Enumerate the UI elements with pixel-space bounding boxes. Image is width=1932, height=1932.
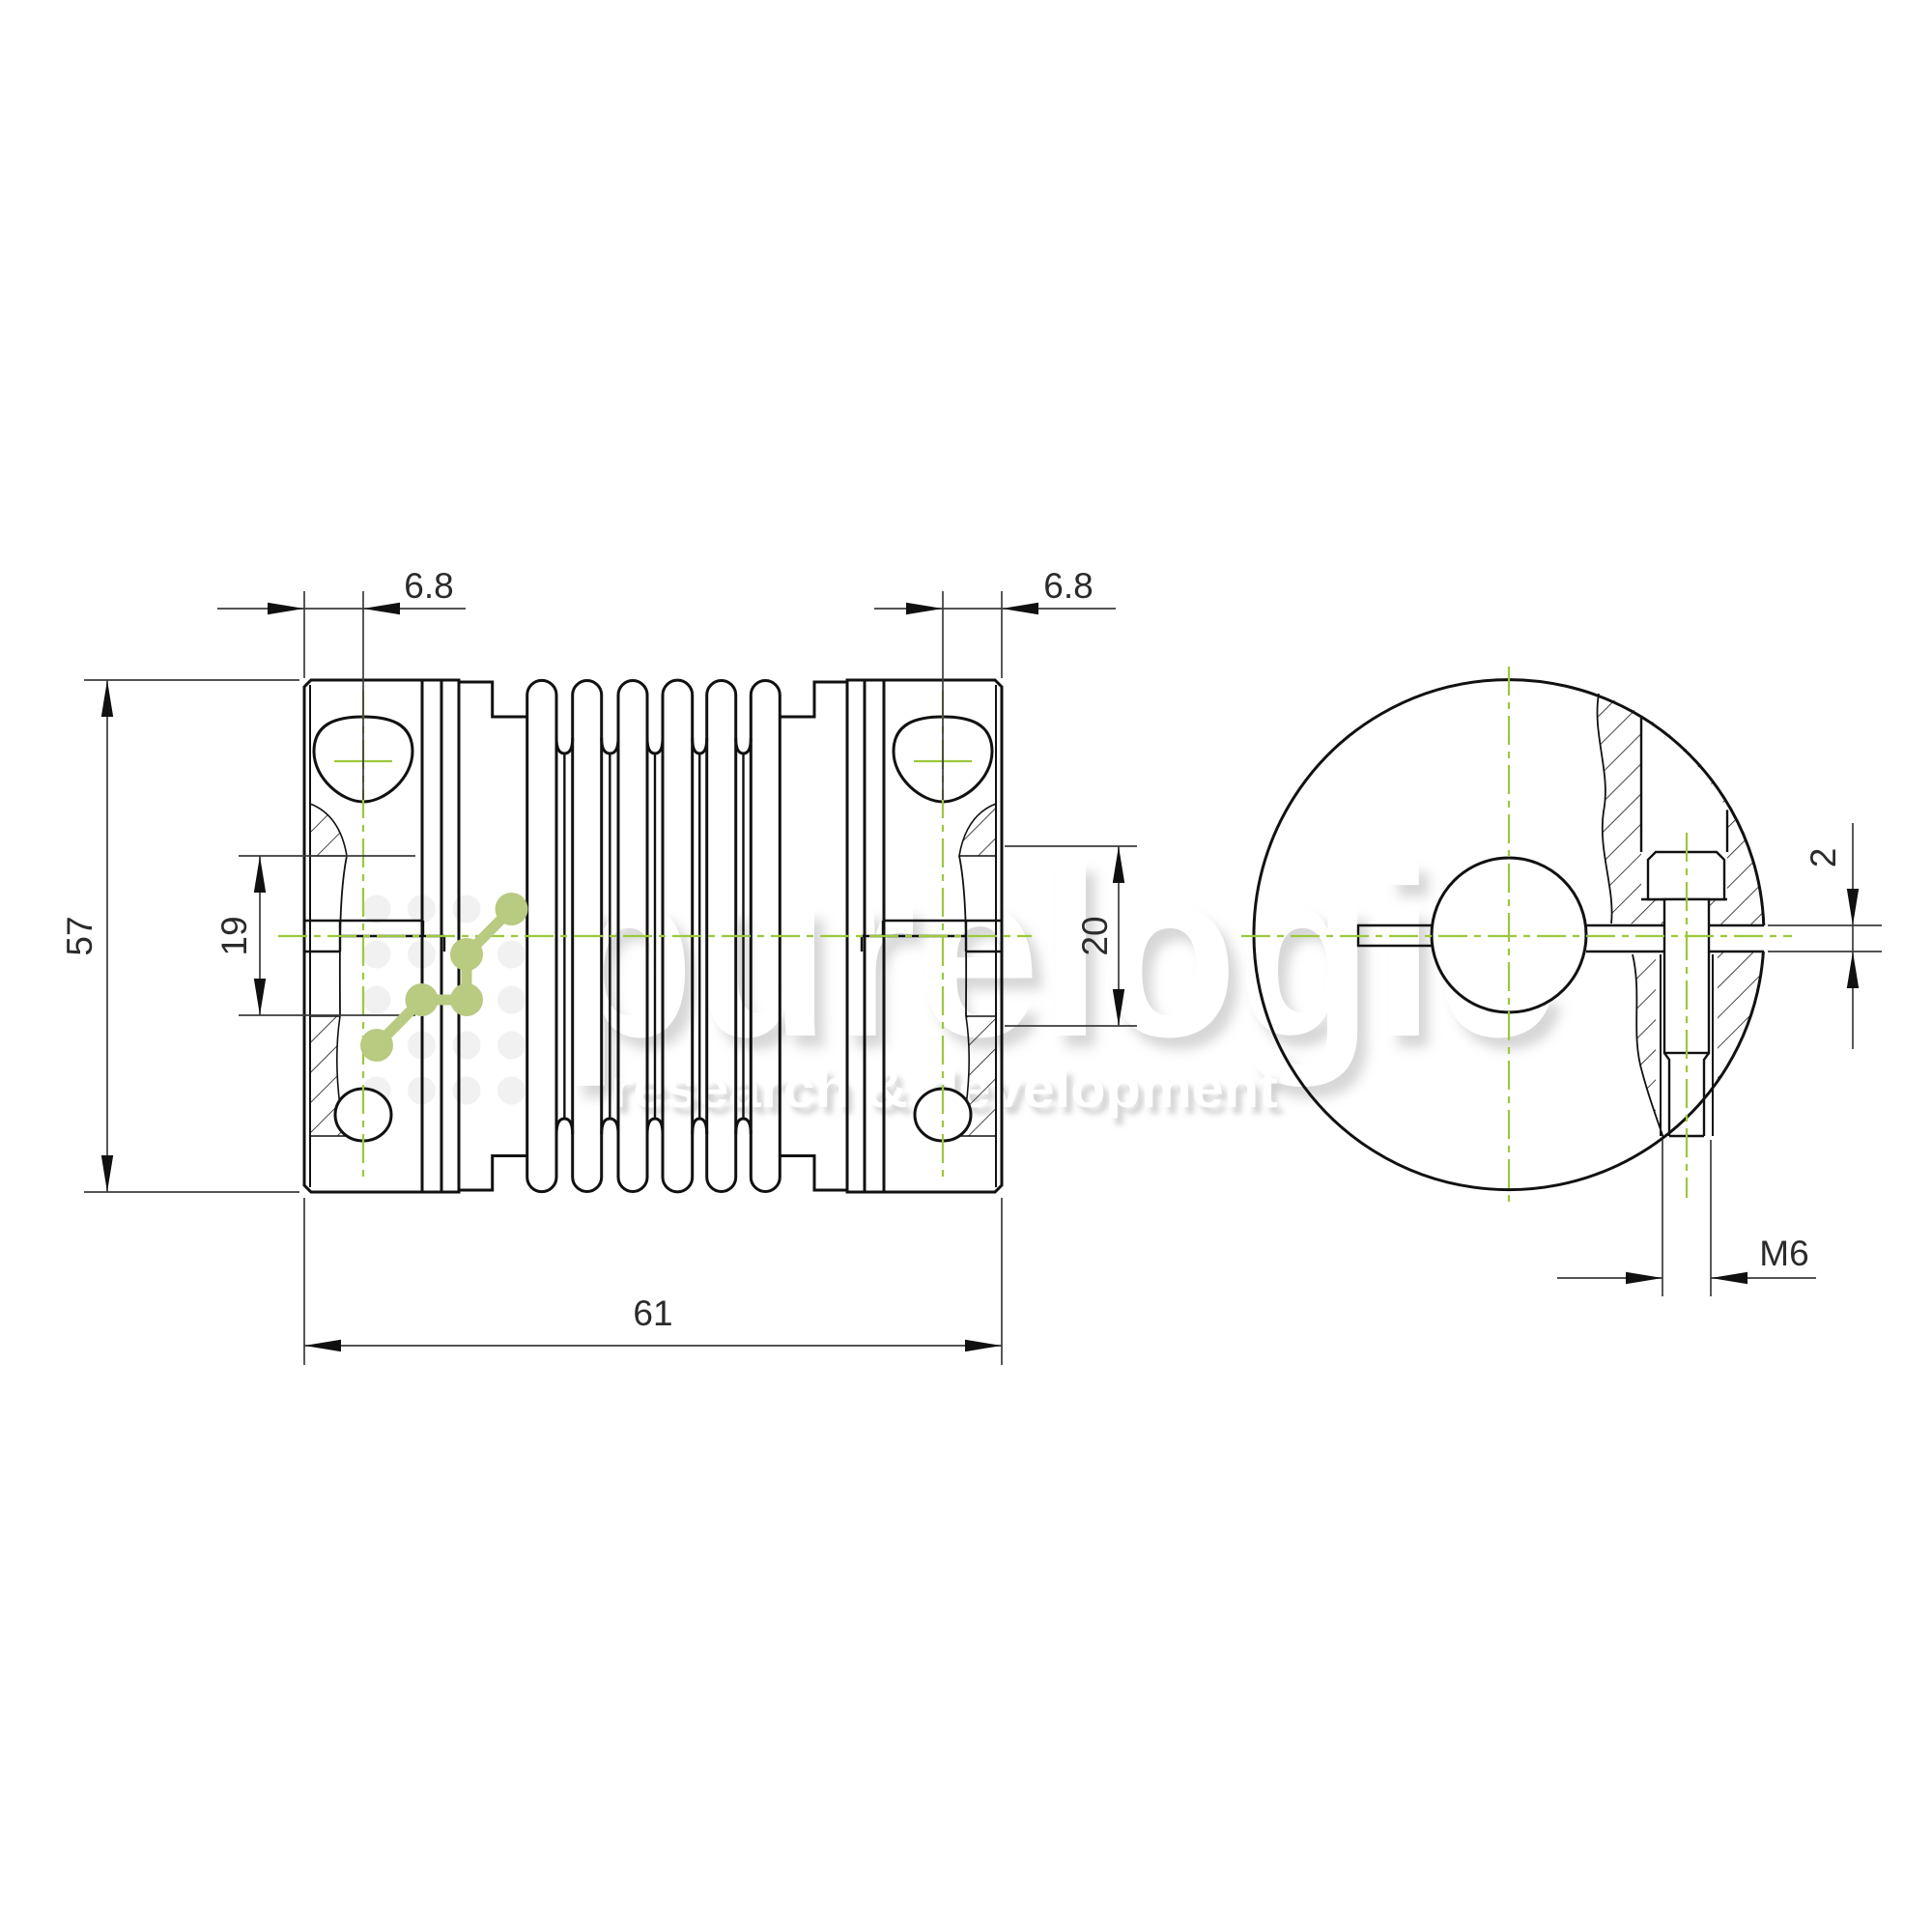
logo-node-icon <box>406 983 439 1016</box>
logo-node-icon <box>496 893 528 925</box>
logo-node-icon <box>450 938 483 971</box>
logo-layer <box>0 0 1932 1932</box>
logo-node-icon <box>450 983 483 1016</box>
logo-green-molecule <box>360 893 528 1062</box>
logo-node-icon <box>360 1029 393 1062</box>
logo-svg <box>0 0 1932 1932</box>
